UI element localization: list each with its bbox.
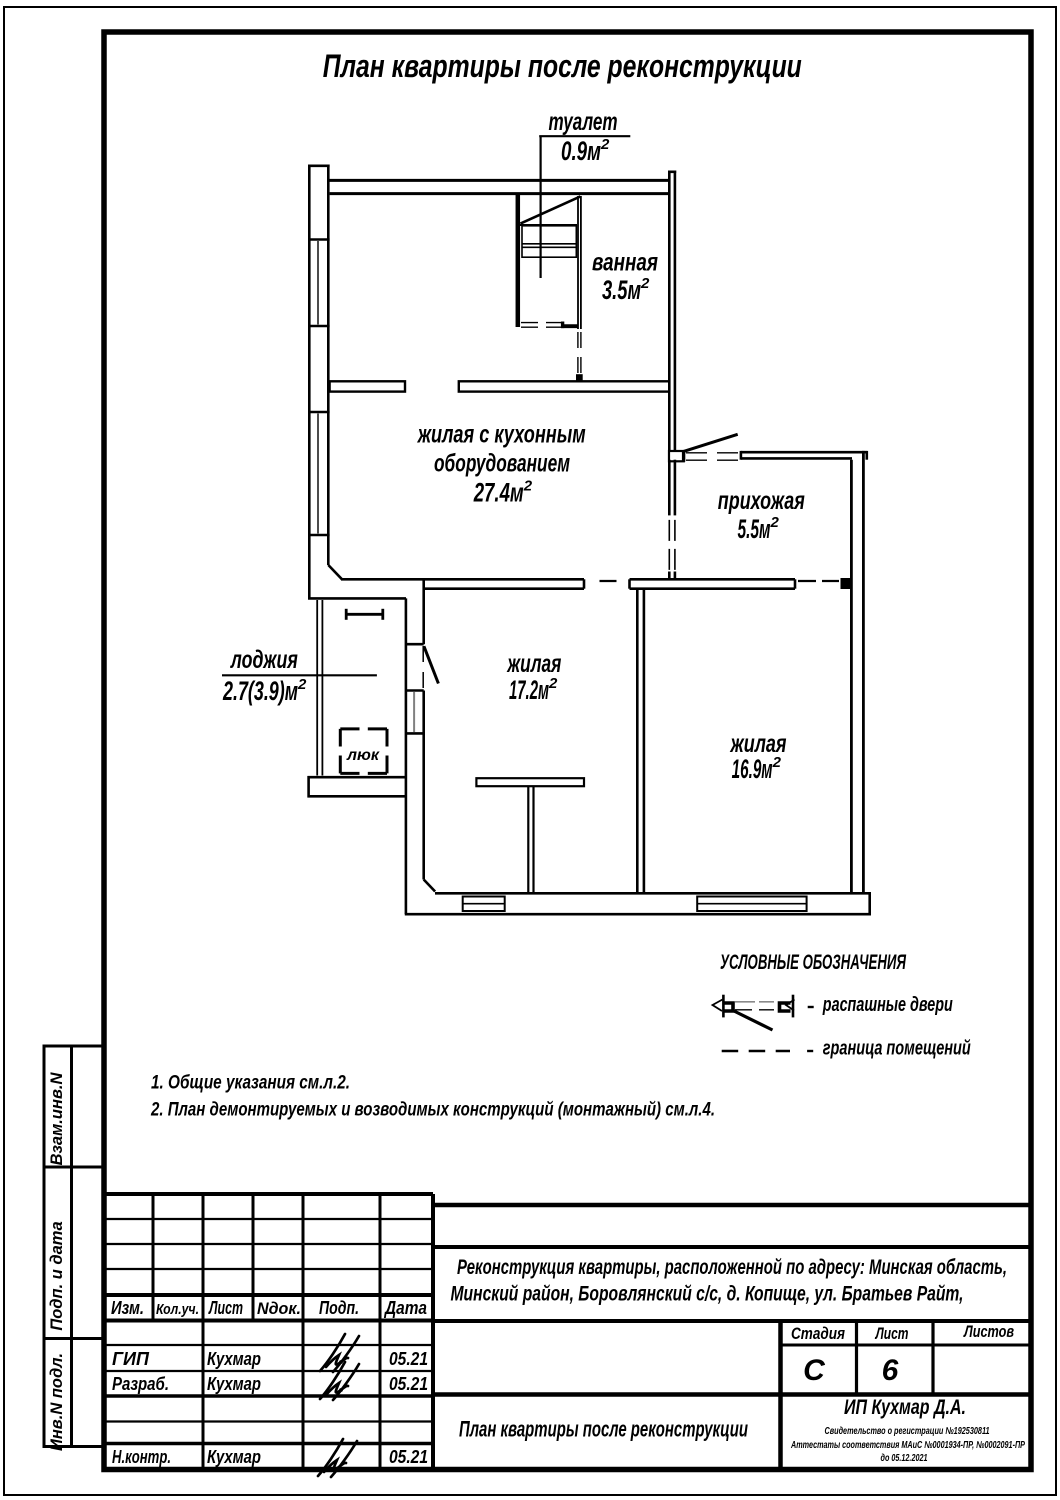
svg-text:ГИП: ГИП (112, 1349, 150, 1369)
svg-text:Минский район, Боровлянский с/: Минский район, Боровлянский с/с, д. Копи… (451, 1283, 964, 1306)
svg-text:План квартиры после реконструк: План квартиры после реконструкции (323, 48, 802, 84)
svg-text:Лист: Лист (874, 1324, 908, 1343)
svg-text:Кол.уч.: Кол.уч. (156, 1302, 199, 1318)
svg-text:до 05.12.2021: до 05.12.2021 (881, 1453, 928, 1464)
svg-text:Лист: Лист (208, 1298, 243, 1318)
svg-text:прихожая: прихожая (718, 487, 805, 515)
svg-text:Подп. и дата: Подп. и дата (48, 1221, 66, 1330)
svg-text:Взам.инв.N: Взам.инв.N (48, 1072, 66, 1166)
svg-text:Подп.: Подп. (319, 1298, 359, 1318)
svg-text:люк: люк (346, 747, 380, 764)
svg-text:Стадия: Стадия (791, 1324, 845, 1343)
svg-text:туалет: туалет (549, 108, 618, 136)
svg-text:Nдок.: Nдок. (257, 1300, 301, 1318)
svg-text:Листов: Листов (963, 1322, 1014, 1341)
svg-text:Кухмар: Кухмар (207, 1447, 261, 1467)
svg-text:Изм.: Изм. (111, 1298, 144, 1318)
svg-text:Н.контр.: Н.контр. (112, 1447, 171, 1467)
svg-text:Разраб.: Разраб. (112, 1374, 169, 1394)
svg-text:Инв.N подл.: Инв.N подл. (48, 1353, 66, 1451)
svg-text:Дата: Дата (383, 1298, 427, 1318)
svg-text:05.21: 05.21 (389, 1447, 428, 1467)
svg-text:Свидетельство о регистрации №1: Свидетельство о регистрации №192530811 (825, 1426, 990, 1437)
svg-text:05.21: 05.21 (389, 1374, 428, 1394)
svg-text:оборудованием: оборудованием (434, 450, 570, 478)
svg-text:Кухмар: Кухмар (207, 1349, 261, 1369)
svg-text:05.21: 05.21 (389, 1349, 428, 1369)
svg-text:граница помещений: граница помещений (823, 1038, 971, 1060)
svg-text:Аттестаты соответствия МАиС №0: Аттестаты соответствия МАиС №0001934-ПР,… (790, 1440, 1025, 1451)
svg-text:2. План демонтируемых и возво: 2. План демонтируемых и возводимых конст… (150, 1099, 715, 1121)
svg-text:жилая с кухонным: жилая с кухонным (416, 421, 585, 449)
svg-text:ИП Кухмар Д.А.: ИП Кухмар Д.А. (844, 1396, 966, 1419)
svg-text:ванная: ванная (592, 249, 658, 277)
svg-text:6: 6 (882, 1354, 899, 1387)
svg-text:С: С (803, 1354, 826, 1387)
svg-text:2.7(3.9)м2: 2.7(3.9)м2 (222, 676, 307, 706)
svg-text:распашные двери: распашные двери (822, 994, 953, 1016)
svg-text:УСЛОВНЫЕ ОБОЗНАЧЕНИЯ: УСЛОВНЫЕ ОБОЗНАЧЕНИЯ (720, 950, 907, 974)
svg-text:1. Общие указания см.л.2.: 1. Общие указания см.л.2. (151, 1072, 350, 1094)
svg-text:Реконструкция квартиры, распол: Реконструкция квартиры, расположенной по… (457, 1256, 1007, 1279)
svg-text:Кухмар: Кухмар (207, 1374, 261, 1394)
svg-text:лоджия: лоджия (230, 646, 298, 674)
svg-text:План квартиры после реконструк: План квартиры после реконструкции (459, 1417, 748, 1442)
svg-text:жилая: жилая (506, 650, 562, 678)
